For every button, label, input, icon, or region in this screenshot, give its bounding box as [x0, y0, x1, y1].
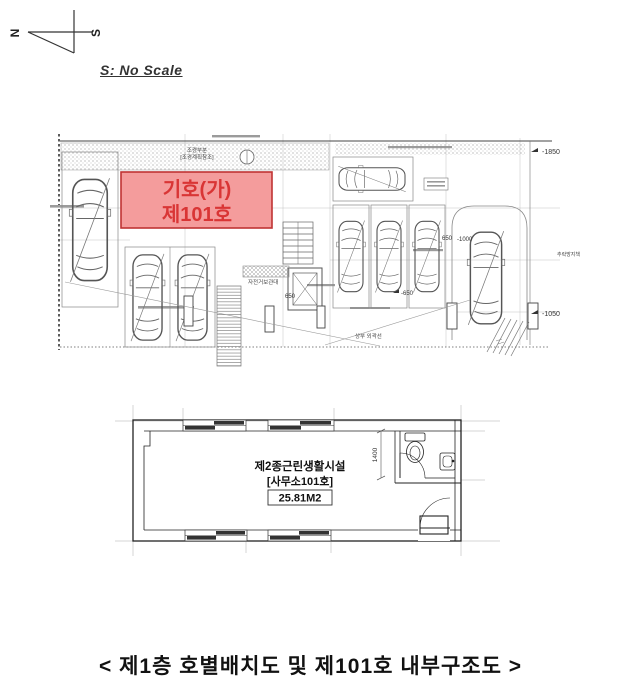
dim-650b-label: 650	[442, 236, 453, 242]
parking-left-boundary	[62, 152, 118, 307]
stair-annotation-text-2	[427, 185, 445, 187]
dim-neg1000-label: -1000	[457, 237, 473, 243]
landscape-strip-right	[335, 143, 525, 155]
bathroom	[395, 431, 461, 483]
parking-top-right	[333, 157, 413, 201]
dim-1400-label: 1400	[372, 447, 379, 462]
bike-rack-label: 자전거보관대	[248, 278, 278, 286]
car-left-boundary	[69, 178, 110, 282]
bike-rack-area	[243, 266, 289, 277]
compass-north-label: N	[10, 29, 22, 38]
car-stall-6	[467, 231, 505, 325]
stairs-upper	[283, 222, 313, 264]
stairs-lower-hatched	[217, 286, 241, 366]
stair-annotation-box	[424, 178, 448, 190]
stair-annotation-text-1	[427, 181, 445, 183]
area-label: 25.81M2	[279, 493, 322, 505]
car-stall-4	[375, 221, 404, 293]
elev-1850-label: -1850	[542, 149, 560, 156]
scale-note: S: No Scale	[100, 62, 183, 78]
upper-outline-label: 상부 외곽선	[355, 332, 382, 340]
room-labels: 제2종근린생활시설 [사무소101호] 25.81M2	[254, 459, 345, 505]
parking-far-right	[452, 206, 527, 340]
plan-windows-bottom	[185, 530, 331, 541]
car-stall-5	[413, 221, 442, 293]
dim-neg650-label: -650	[401, 291, 414, 297]
site-plan-drawing: 조경부분 [조경계획참조] 기호(가) 제101호	[48, 128, 621, 378]
car-stall-1	[130, 254, 165, 341]
elevation-markers: -1850 -1050 추락방지책 650 -650 650 -1000	[285, 148, 580, 318]
unit-101-number-label: 제101호	[162, 203, 232, 226]
elev-1050-label: -1050	[542, 311, 560, 318]
landscape-label-1: 조경부분	[187, 147, 207, 154]
room-number-label: [사무소101호]	[267, 474, 333, 488]
plan-windows-top	[183, 420, 334, 431]
car-horizontal	[338, 166, 406, 193]
drawing-caption: < 제1층 호별배치도 및 제101호 내부구조도 >	[0, 650, 621, 680]
landscape-label-2: [조경계획참조]	[180, 153, 214, 161]
north-arrow: N S	[10, 5, 140, 65]
compass-diagonal-line	[28, 32, 74, 53]
room-type-label: 제2종근린생활시설	[254, 459, 345, 473]
dim-650-label: 650	[285, 294, 296, 300]
elevator-shaft	[288, 268, 322, 310]
unit-101-highlight: 기호(가) 제101호	[121, 172, 272, 228]
parking-right-block	[333, 205, 445, 308]
fall-guard-label: 추락방지책	[557, 251, 580, 258]
unit-101-floor-plan: 1400 제2종근린생활시설 [사무소101호] 25.81M2	[110, 398, 510, 598]
car-stall-3	[337, 221, 366, 293]
entry-door	[418, 498, 450, 541]
compass-south-label: S	[89, 29, 103, 37]
dim-1400: 1400	[372, 429, 385, 480]
unit-101-symbol-label: 기호(가)	[163, 178, 232, 201]
